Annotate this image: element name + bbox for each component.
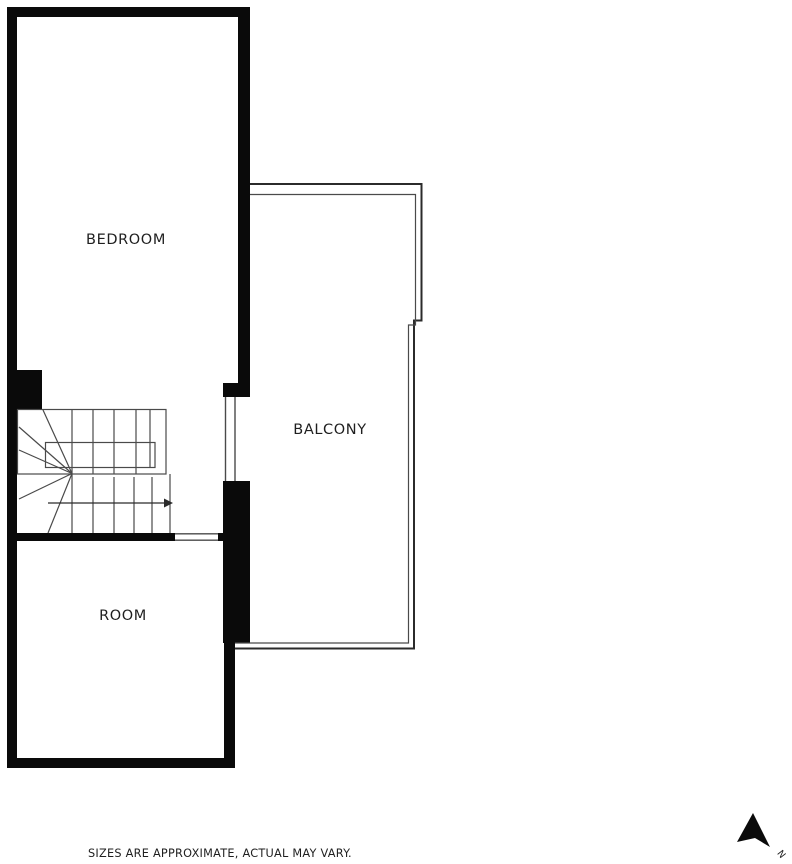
balcony-railing-outer [235,184,422,649]
north-arrow-label: N [774,848,787,860]
wall-top [7,7,250,17]
stair-arrow-head-icon [164,499,173,508]
floor-plan-page: BEDROOM BALCONY ROOM SIZES ARE APPROXIMA… [0,0,792,864]
wall-room-right [224,643,235,768]
stair-winder [19,474,72,500]
north-arrow-shape [737,813,770,847]
wall-stair-bottom [17,533,175,541]
wall-left [7,7,17,768]
wall-room-bottom [7,758,235,768]
room-label-bedroom: BEDROOM [86,232,166,248]
staircase [18,410,171,534]
wall-stair-left-block [17,370,42,409]
north-arrow-icon: N [737,813,787,861]
wall-bedroom-right [238,7,250,397]
wall-mid-right [223,481,250,643]
wall-stair-bottom-right-piece [218,533,225,541]
stair-outline-inner [46,443,156,468]
walls [7,7,250,768]
wall-stub-balcony-door-top [223,383,250,397]
room-label-balcony: BALCONY [293,422,366,438]
stair-outline-outer [18,410,167,475]
disclaimer-text: SIZES ARE APPROXIMATE, ACTUAL MAY VARY. [88,847,352,860]
stair-winder [43,410,72,474]
floor-plan-drawing: BEDROOM BALCONY ROOM SIZES ARE APPROXIMA… [0,0,792,864]
room-label-room: ROOM [99,608,147,624]
balcony-railing-inner [235,195,416,644]
